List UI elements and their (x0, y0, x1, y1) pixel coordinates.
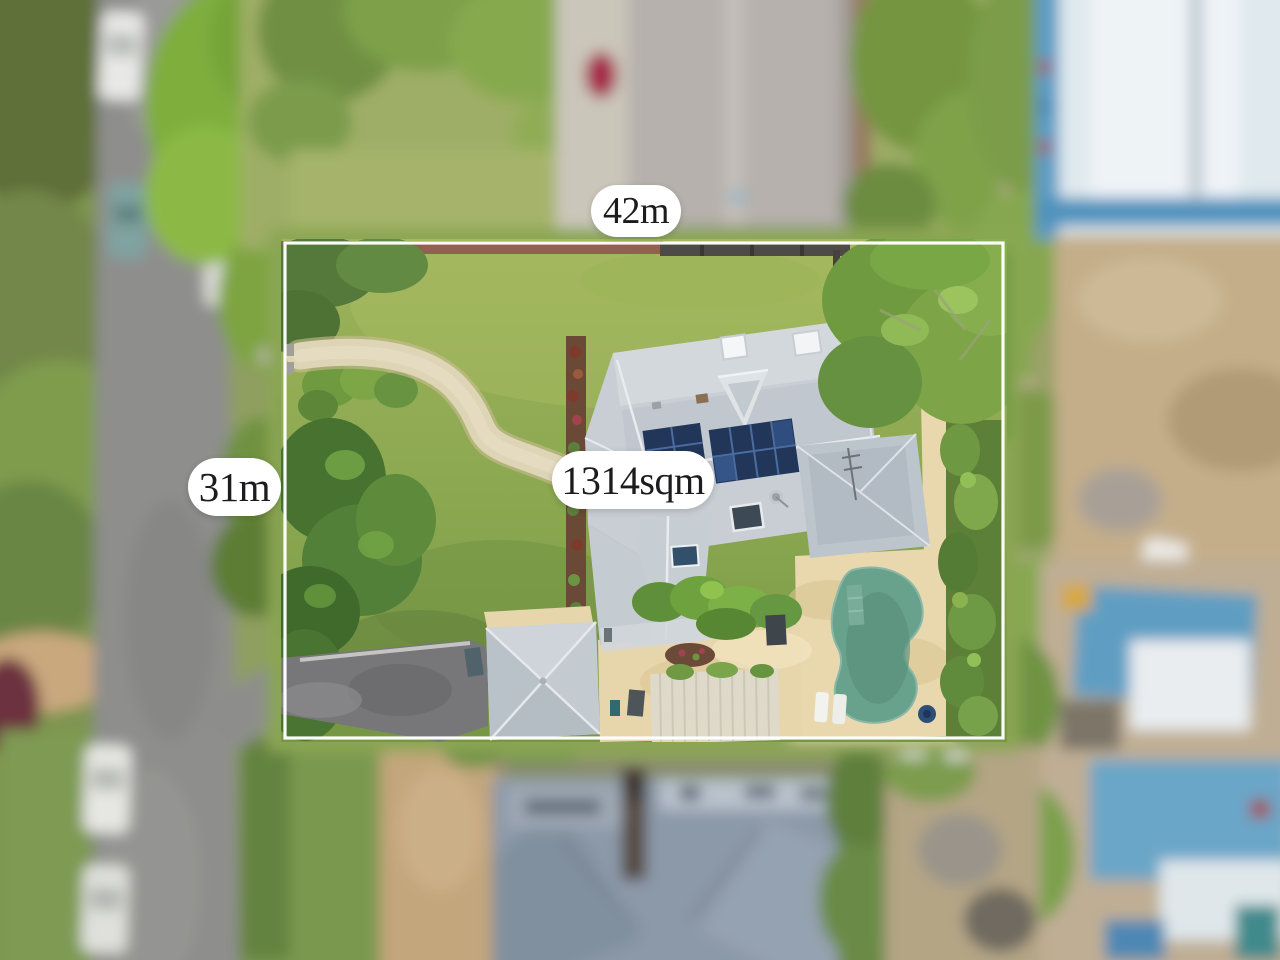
skylight (793, 330, 822, 355)
dirt-yard-right (1055, 235, 1280, 605)
garage-roof (486, 622, 600, 740)
land-area-label: 1314sqm (561, 457, 704, 504)
construction-building-top (1035, 0, 1280, 240)
parked-car (98, 11, 145, 101)
gable-window (671, 545, 698, 567)
side-dimension-pill: 31m (188, 458, 281, 516)
parked-car (82, 744, 131, 834)
aerial-property-photo: 42m 31m 1314sqm (0, 0, 1280, 960)
sun-lounger (832, 694, 847, 725)
bottom-block (240, 732, 1040, 960)
chimney (622, 768, 646, 880)
sun-lounger (814, 692, 829, 723)
right-wing-roof (797, 434, 930, 558)
frontage-dimension-label: 42m (603, 189, 669, 233)
side-dimension-label: 31m (199, 463, 270, 511)
pool-steps (847, 585, 865, 626)
roof-window (730, 503, 763, 531)
bottom-neighbour-roof (492, 768, 838, 960)
construction-site-bottom (1040, 560, 1280, 960)
land-area-pill: 1314sqm (552, 451, 714, 509)
parked-car (107, 182, 150, 259)
pergola-roof (650, 662, 780, 744)
right-hedge (938, 420, 1004, 740)
timber-fence (660, 243, 850, 256)
skylight (721, 334, 748, 359)
frontage-dimension-pill: 42m (591, 185, 681, 237)
parked-car (80, 864, 129, 954)
